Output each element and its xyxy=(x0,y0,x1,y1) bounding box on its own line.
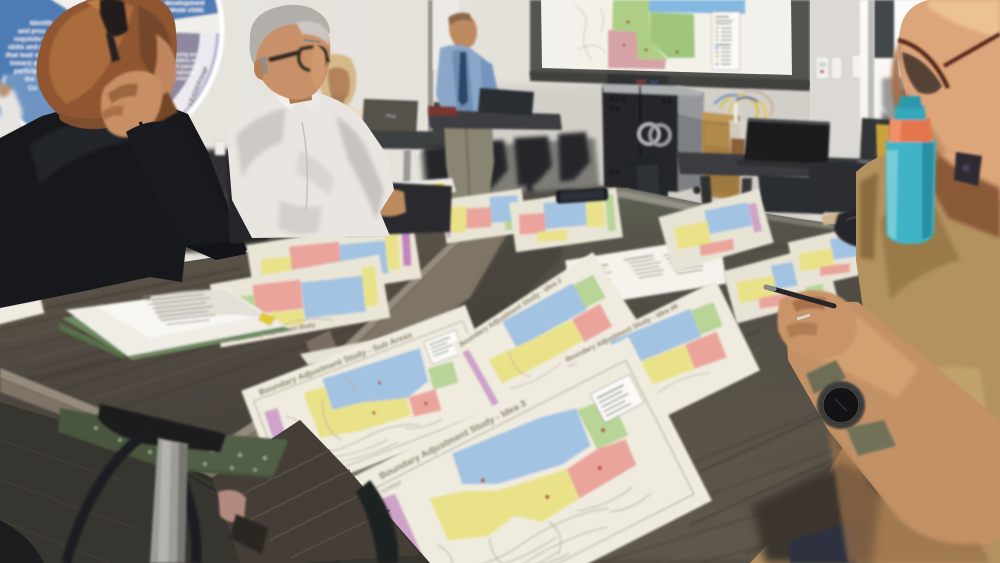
svg-text:toward su: toward su xyxy=(10,60,41,67)
svg-text:Identify: Identify xyxy=(30,20,53,27)
svg-text:and prov: and prov xyxy=(18,28,46,35)
svg-text:that lead st: that lead st xyxy=(6,52,41,59)
svg-text:the: the xyxy=(25,76,35,83)
svg-text:Co: Co xyxy=(28,85,37,92)
